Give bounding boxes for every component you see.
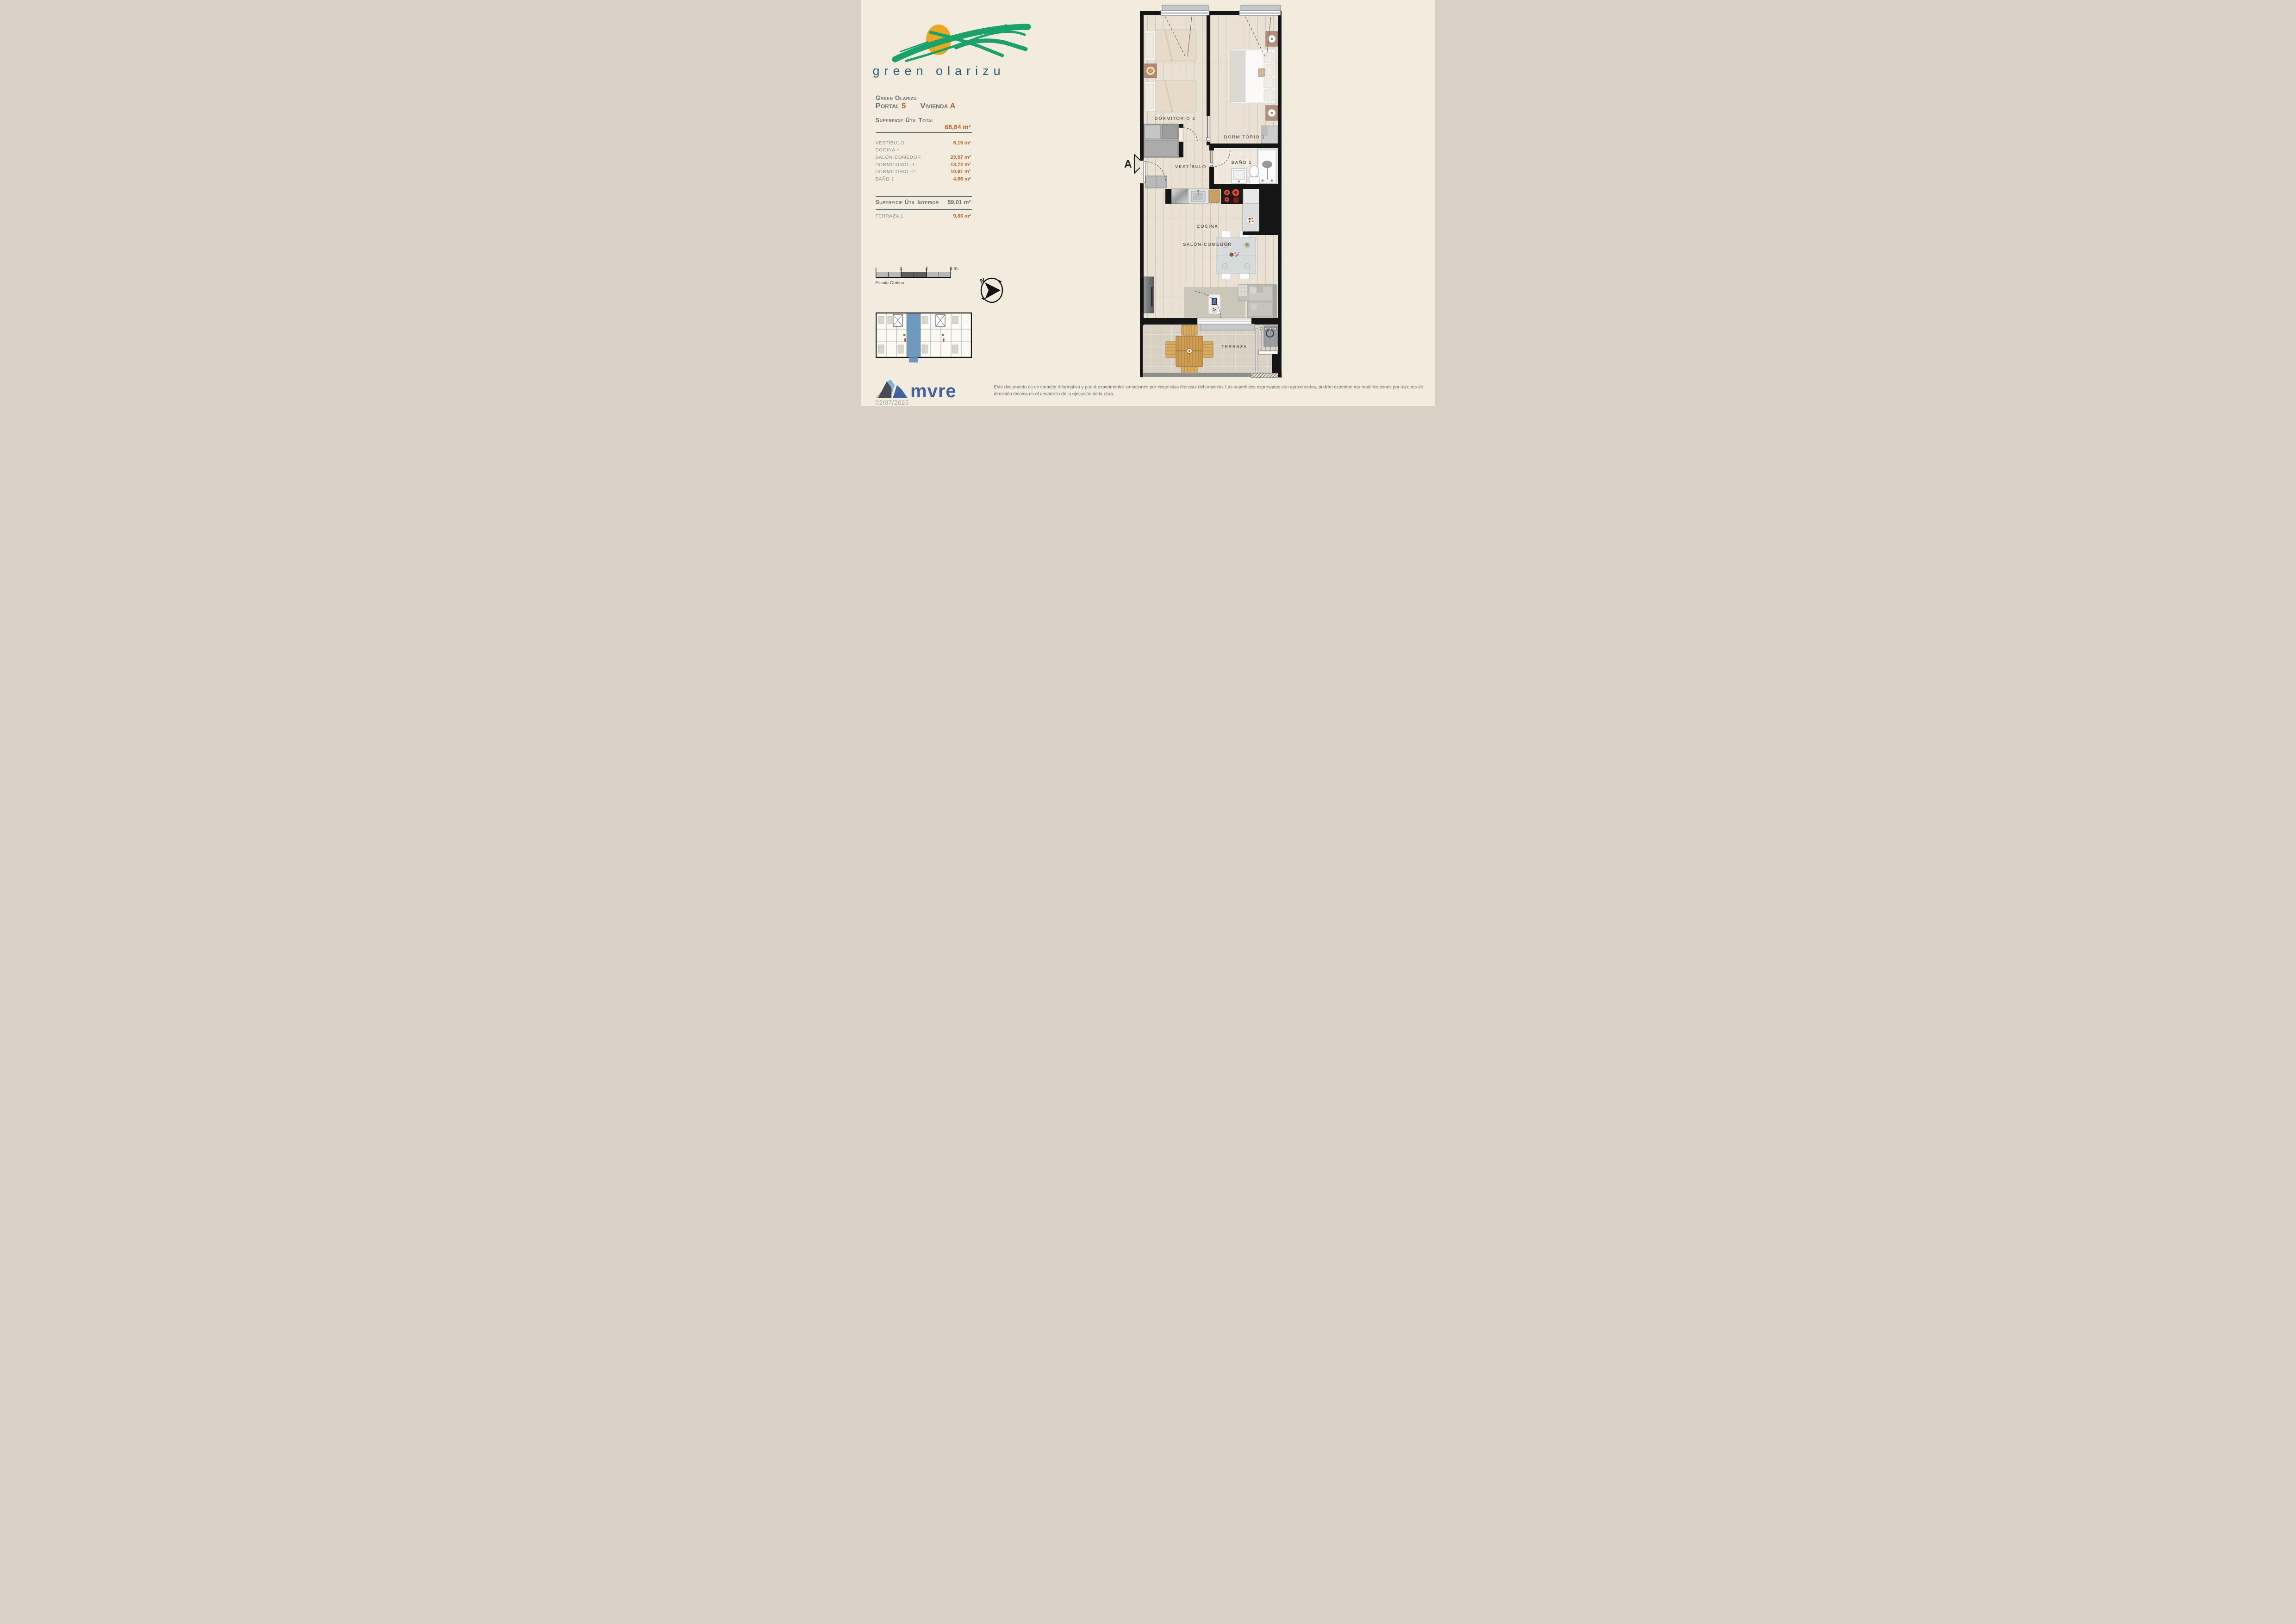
list-item: DORMITORIO -1- 13,72 m² — [876, 162, 971, 169]
list-item: VESTÍBULO 6,15 m² — [876, 140, 971, 148]
terrace-partition — [1256, 329, 1258, 373]
exit-marker — [903, 334, 906, 336]
highlighted-unit-terrace — [909, 357, 918, 362]
scale-tick-2: 2 — [925, 266, 928, 271]
floor-plan: DORMITORIO 2 DORMITORIO 1 VESTÍBULO BAÑO… — [1140, 5, 1282, 381]
disclaimer-text: Este documento es de caracter informativ… — [994, 384, 1425, 398]
label-bano: BAÑO 1 — [1231, 160, 1251, 165]
label-salon: SALÓN-COMEDOR — [1183, 242, 1232, 247]
logo-brush-strokes — [895, 25, 1028, 61]
list-item: SALON-COMEDOR 23,57 m² — [876, 155, 971, 162]
label-cocina: COCINA — [1196, 224, 1218, 229]
cutting-board — [1209, 190, 1220, 203]
divider-line — [876, 196, 972, 197]
entrance-door — [1144, 162, 1145, 182]
list-item: DORMITORIO -2- 10,91 m² — [876, 169, 971, 176]
terrace-edge — [1143, 373, 1251, 377]
mvre-logo: mvre — [874, 380, 971, 400]
north-compass-icon: N — [979, 276, 1005, 304]
dishwasher — [1171, 189, 1188, 204]
project-name: Green Olarizu — [876, 94, 917, 101]
wardrobe — [1144, 124, 1179, 157]
section-marker-letter: A — [1124, 158, 1132, 170]
dining-table — [1217, 231, 1256, 280]
graphic-scale-bar: 1 2 3 m. — [876, 265, 975, 280]
divider-line — [876, 209, 972, 210]
terrace-door-window — [1197, 318, 1251, 324]
logo-wordmark: green olarizu — [873, 64, 1005, 78]
toilet — [1250, 166, 1259, 177]
room-surface-list: VESTÍBULO 6,15 m² COCINA + SALON-COMEDOR… — [876, 140, 971, 183]
list-item: BAÑO 1 4,66 m² — [876, 176, 971, 183]
label-terraza: TERRAZA — [1221, 344, 1247, 350]
document-date: 02/07/2025 — [876, 400, 909, 406]
divider-line — [876, 132, 972, 133]
exit-marker — [942, 334, 944, 336]
green-olarizu-logo — [887, 19, 1035, 65]
entrance-opening — [1140, 161, 1144, 183]
scale-caption: Escala Gráfica — [876, 281, 904, 286]
window-shutter — [1241, 5, 1281, 11]
vivienda-letter: A — [950, 101, 955, 110]
interior-surface-row: Superficie Útil Interior 59,01 m² — [876, 199, 971, 206]
total-surface-label: Superficie Útil Total — [876, 117, 934, 124]
door-marker — [904, 338, 906, 342]
highlighted-unit — [907, 313, 921, 357]
portal-number: 5 — [902, 101, 906, 110]
total-surface-value: 68,84 m² — [876, 123, 971, 131]
floorplan-sheet: green olarizu Green Olarizu Portal 5 Viv… — [861, 0, 1435, 406]
portal-label: Portal — [876, 101, 900, 110]
window-shutter — [1162, 5, 1208, 11]
label-vestibulo: VESTÍBULO — [1175, 164, 1207, 169]
bedroom2-door — [1179, 128, 1183, 142]
mvre-wordmark: mvre — [910, 381, 957, 400]
scale-tick-3: 3 m. — [950, 266, 958, 271]
unit-title: Portal 5 Vivienda A — [876, 101, 956, 111]
door-marker — [943, 338, 945, 342]
vivienda-label: Vivienda — [920, 101, 948, 110]
building-key-plan — [876, 312, 972, 364]
label-dormitorio-1: DORMITORIO 1 — [1224, 135, 1265, 140]
list-item: COCINA + — [876, 148, 971, 155]
scale-tick-1: 1 — [900, 266, 902, 271]
label-dormitorio-2: DORMITORIO 2 — [1154, 116, 1195, 121]
fruit-bowl — [1247, 216, 1255, 225]
terraza-surface-row: TERRAZA 1 9,83 m² — [876, 213, 971, 219]
